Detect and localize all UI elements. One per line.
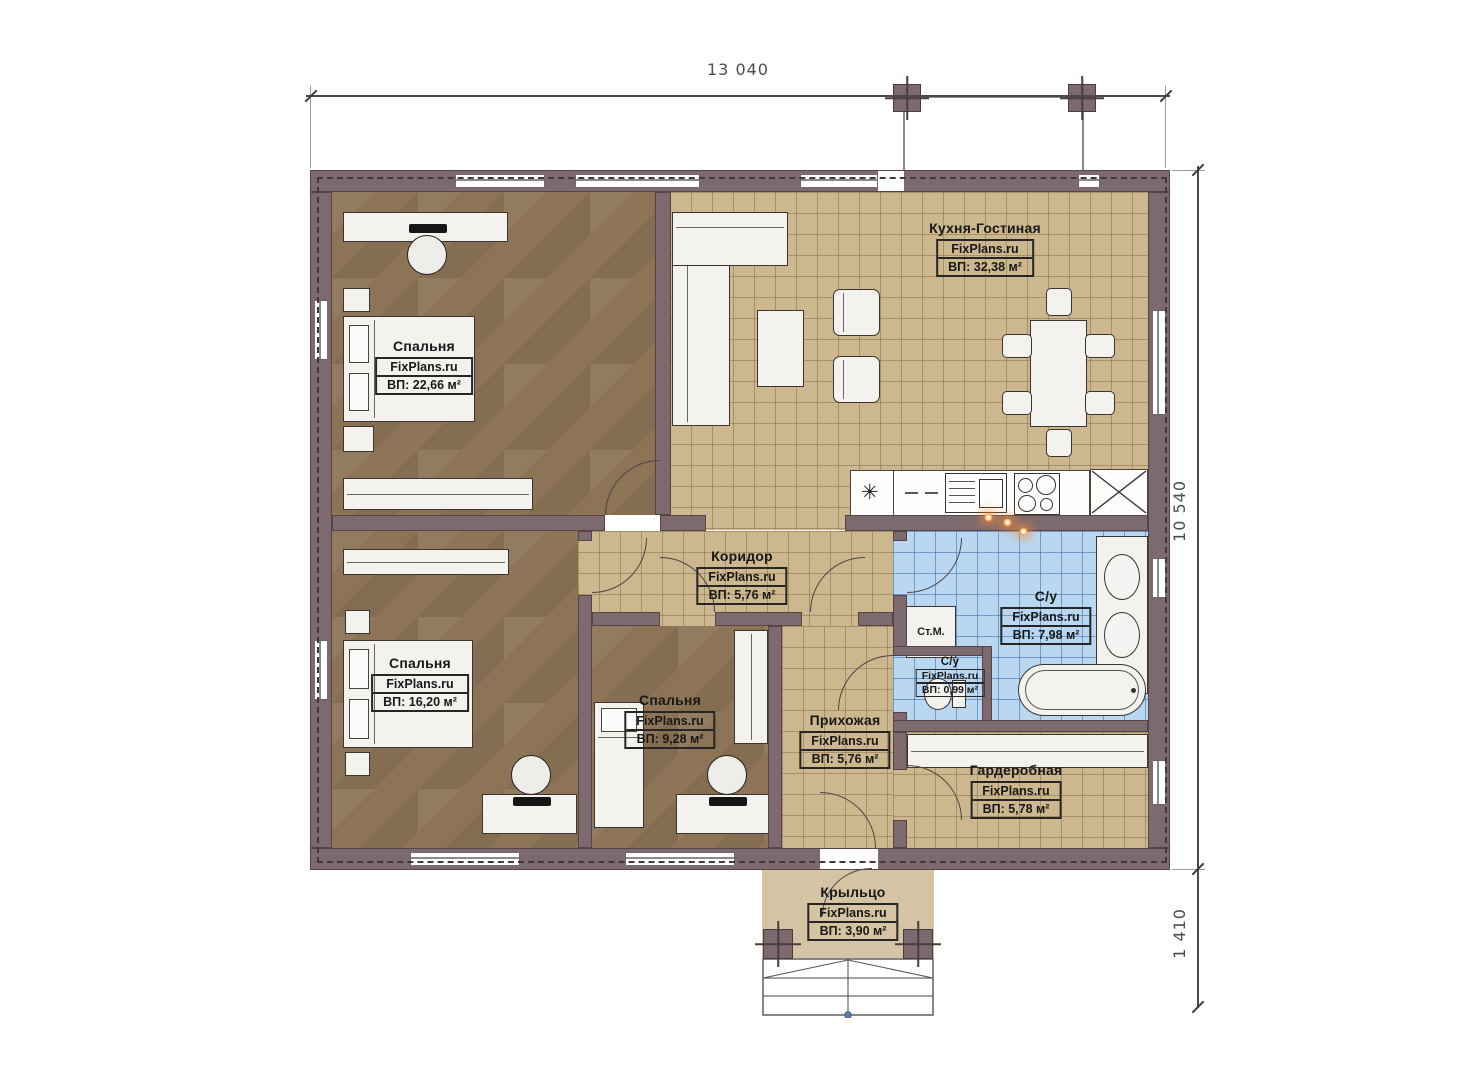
bathtub-tap-icon: [1131, 688, 1136, 693]
bathtub-inner: [1025, 670, 1139, 710]
room-info-box: FixPlans.ru ВП: 7,98 м²: [1000, 607, 1091, 645]
window: [800, 175, 878, 187]
room-area: ВП: 0,99 м²: [917, 682, 984, 696]
room-info-box: FixPlans.ru ВП: 9,28 м²: [624, 711, 715, 749]
wall: [845, 515, 1148, 531]
wardrobe-cabinet: [343, 549, 509, 575]
room-info-box: FixPlans.ru ВП: 3,90 м²: [807, 903, 898, 941]
room-info-box: FixPlans.ru ВП: 0,99 м²: [916, 669, 985, 697]
dimension-line-porch: [1197, 874, 1199, 1008]
porch-column: [903, 929, 933, 959]
window: [410, 853, 520, 865]
dining-chair: [1046, 288, 1072, 316]
dining-chair: [1002, 391, 1032, 415]
room-area: ВП: 7,98 м²: [1002, 625, 1089, 643]
window: [1153, 760, 1165, 805]
dining-chair: [1002, 334, 1032, 358]
closet-rail: [911, 751, 1144, 752]
pillow: [349, 373, 369, 411]
nightstand: [345, 752, 370, 776]
chair-seat: [511, 755, 551, 795]
terrace-column: [893, 84, 921, 112]
stove-icon: [1014, 473, 1060, 515]
room-label-bedroom-bottom-left: Спальня FixPlans.ru ВП: 16,20 м²: [371, 655, 469, 712]
room-info-box: FixPlans.ru ВП: 5,76 м²: [696, 567, 787, 605]
sink-basin-icon: [1104, 554, 1140, 600]
armchair: [833, 356, 880, 403]
armchair-line: [843, 293, 844, 332]
fridge-icon: ✳: [851, 471, 894, 515]
room-area: ВП: 9,28 м²: [626, 729, 713, 747]
room-area: ВП: 3,90 м²: [809, 921, 896, 939]
window: [1153, 558, 1165, 598]
counter-dash: [925, 492, 938, 494]
office-chair-icon: [510, 748, 554, 806]
wall: [893, 531, 907, 541]
watermark-text: FixPlans.ru: [626, 713, 713, 729]
terrace-edge-line: [903, 112, 905, 170]
room-info-box: FixPlans.ru ВП: 32,38 м²: [936, 239, 1034, 277]
room-name: Спальня: [375, 338, 473, 354]
dimension-line-top: [306, 95, 1170, 97]
sconce-light-icon: [984, 513, 993, 522]
room-name: Гардеробная: [970, 762, 1063, 778]
room-area: ВП: 32,38 м²: [938, 257, 1032, 275]
dimension-line-right: [1197, 166, 1199, 874]
sink-icon: [945, 473, 1007, 513]
window: [1078, 175, 1100, 187]
chair-backrest: [709, 797, 747, 806]
room-label-wc: С/у FixPlans.ru ВП: 0,99 м²: [916, 656, 985, 698]
wall: [858, 612, 893, 626]
room-info-box: FixPlans.ru ВП: 5,76 м²: [799, 731, 890, 769]
room-name: Спальня: [371, 655, 469, 671]
dining-chair: [1085, 334, 1115, 358]
cabinet-line: [751, 634, 752, 740]
terrace-column: [1068, 84, 1096, 112]
wall: [893, 720, 1148, 732]
dimension-value-porch: 1 410: [1170, 908, 1189, 959]
wall: [310, 170, 1170, 192]
armchair-line: [843, 360, 844, 399]
burner: [1036, 475, 1056, 495]
room-area: ВП: 5,78 м²: [972, 799, 1059, 817]
sink-drainer: [949, 481, 975, 508]
wall: [578, 531, 592, 541]
sink-basin-icon: [1104, 612, 1140, 658]
kitchen-counter: ✳: [850, 470, 1090, 516]
room-area: ВП: 5,76 м²: [801, 749, 888, 767]
room-label-bathroom: С/у FixPlans.ru ВП: 7,98 м²: [1000, 588, 1091, 645]
room-info-box: FixPlans.ru ВП: 22,66 м²: [375, 357, 473, 395]
office-chair-icon: [406, 224, 450, 282]
dimension-value-right: 10 540: [1170, 480, 1189, 542]
wall: [332, 515, 605, 531]
room-info-box: FixPlans.ru ВП: 16,20 м²: [371, 674, 469, 712]
chair-seat: [407, 235, 447, 275]
armchair: [833, 289, 880, 336]
extension-line: [310, 86, 311, 168]
wall: [660, 515, 706, 531]
door-opening: [878, 171, 904, 191]
coffee-table: [757, 310, 804, 387]
room-label-porch: Крыльцо FixPlans.ru ВП: 3,90 м²: [807, 884, 898, 941]
column-axis: [1060, 97, 1104, 99]
room-name: Коридор: [696, 548, 787, 564]
entry-door-opening: [820, 849, 878, 869]
room-area: ВП: 5,76 м²: [698, 585, 785, 603]
wall: [592, 612, 660, 626]
extension-line: [1165, 86, 1166, 168]
sconce-light-icon: [1019, 527, 1028, 536]
dining-table: [1030, 320, 1087, 427]
wardrobe-cabinet: [343, 478, 533, 510]
watermark-text: FixPlans.ru: [377, 359, 471, 375]
counter-dash: [905, 492, 918, 494]
sconce-light-icon: [1003, 518, 1012, 527]
cabinet-cross-icon: [1091, 470, 1147, 514]
room-name: С/у: [916, 656, 985, 668]
watermark-text: FixPlans.ru: [938, 241, 1032, 257]
cabinet-line: [347, 562, 505, 563]
wall: [1148, 192, 1170, 848]
wall: [893, 732, 907, 770]
dimension-value-top: 13 040: [310, 60, 1166, 79]
extension-line: [1172, 869, 1205, 870]
terrace-edge-line: [1082, 112, 1084, 170]
nightstand: [343, 288, 370, 312]
sink-basin: [979, 479, 1003, 508]
window: [625, 853, 735, 865]
room-label-hallway: Прихожая FixPlans.ru ВП: 5,76 м²: [799, 712, 890, 769]
pillow: [349, 649, 369, 689]
wall: [768, 626, 782, 848]
room-name: Прихожая: [799, 712, 890, 728]
window: [315, 300, 327, 360]
burner: [1018, 495, 1036, 512]
watermark-text: FixPlans.ru: [809, 905, 896, 921]
dining-chair: [1085, 391, 1115, 415]
floor-plan: ✳: [0, 0, 1473, 1080]
room-area: ВП: 22,66 м²: [377, 375, 471, 393]
wall: [578, 595, 592, 848]
burner: [1018, 478, 1033, 493]
room-label-bedroom-top-left: Спальня FixPlans.ru ВП: 22,66 м²: [375, 338, 473, 395]
watermark-text: FixPlans.ru: [801, 733, 888, 749]
snowflake-icon: ✳: [861, 482, 879, 503]
nightstand: [345, 610, 370, 634]
room-name: С/у: [1000, 588, 1091, 604]
room-label-bedroom-middle: Спальня FixPlans.ru ВП: 9,28 м²: [624, 692, 715, 749]
bathtub: [1018, 664, 1146, 716]
window: [455, 175, 545, 187]
wall: [310, 192, 332, 848]
room-label-corridor: Коридор FixPlans.ru ВП: 5,76 м²: [696, 548, 787, 605]
window: [315, 640, 327, 700]
room-name: Крыльцо: [807, 884, 898, 900]
wall: [893, 820, 907, 848]
column-axis: [885, 97, 929, 99]
watermark-text: FixPlans.ru: [373, 676, 467, 692]
burner: [1040, 498, 1053, 511]
room-name: Спальня: [624, 692, 715, 708]
pillow: [349, 325, 369, 363]
chair-backrest: [513, 797, 551, 806]
corner-cabinet: [1090, 469, 1148, 516]
watermark-text: FixPlans.ru: [972, 783, 1059, 799]
chair-seat: [707, 755, 747, 795]
porch-column: [763, 929, 793, 959]
wall: [893, 646, 992, 656]
sofa-corner-top: [672, 212, 788, 266]
room-label-kitchen-living: Кухня-Гостиная FixPlans.ru ВП: 32,38 м²: [929, 220, 1041, 277]
cabinet-line: [347, 494, 529, 495]
wardrobe-cabinet: [734, 630, 768, 744]
pillow: [349, 699, 369, 739]
watermark-text: FixPlans.ru: [917, 670, 984, 682]
office-chair-icon: [706, 748, 750, 806]
window: [575, 175, 700, 187]
chair-backrest: [409, 224, 447, 233]
watermark-text: FixPlans.ru: [1002, 609, 1089, 625]
watermark-text: FixPlans.ru: [698, 569, 785, 585]
window: [1153, 310, 1165, 415]
porch-steps: [762, 958, 934, 1018]
room-area: ВП: 16,20 м²: [373, 692, 467, 710]
column-axis: [895, 943, 941, 945]
dining-chair: [1046, 429, 1072, 457]
column-axis: [755, 943, 801, 945]
wall: [715, 612, 802, 626]
room-name: Кухня-Гостиная: [929, 220, 1041, 236]
sofa-line: [676, 227, 784, 228]
room-label-wardrobe: Гардеробная FixPlans.ru ВП: 5,78 м²: [970, 762, 1063, 819]
nightstand: [343, 426, 374, 452]
room-info-box: FixPlans.ru ВП: 5,78 м²: [970, 781, 1061, 819]
extension-line: [1172, 170, 1205, 171]
